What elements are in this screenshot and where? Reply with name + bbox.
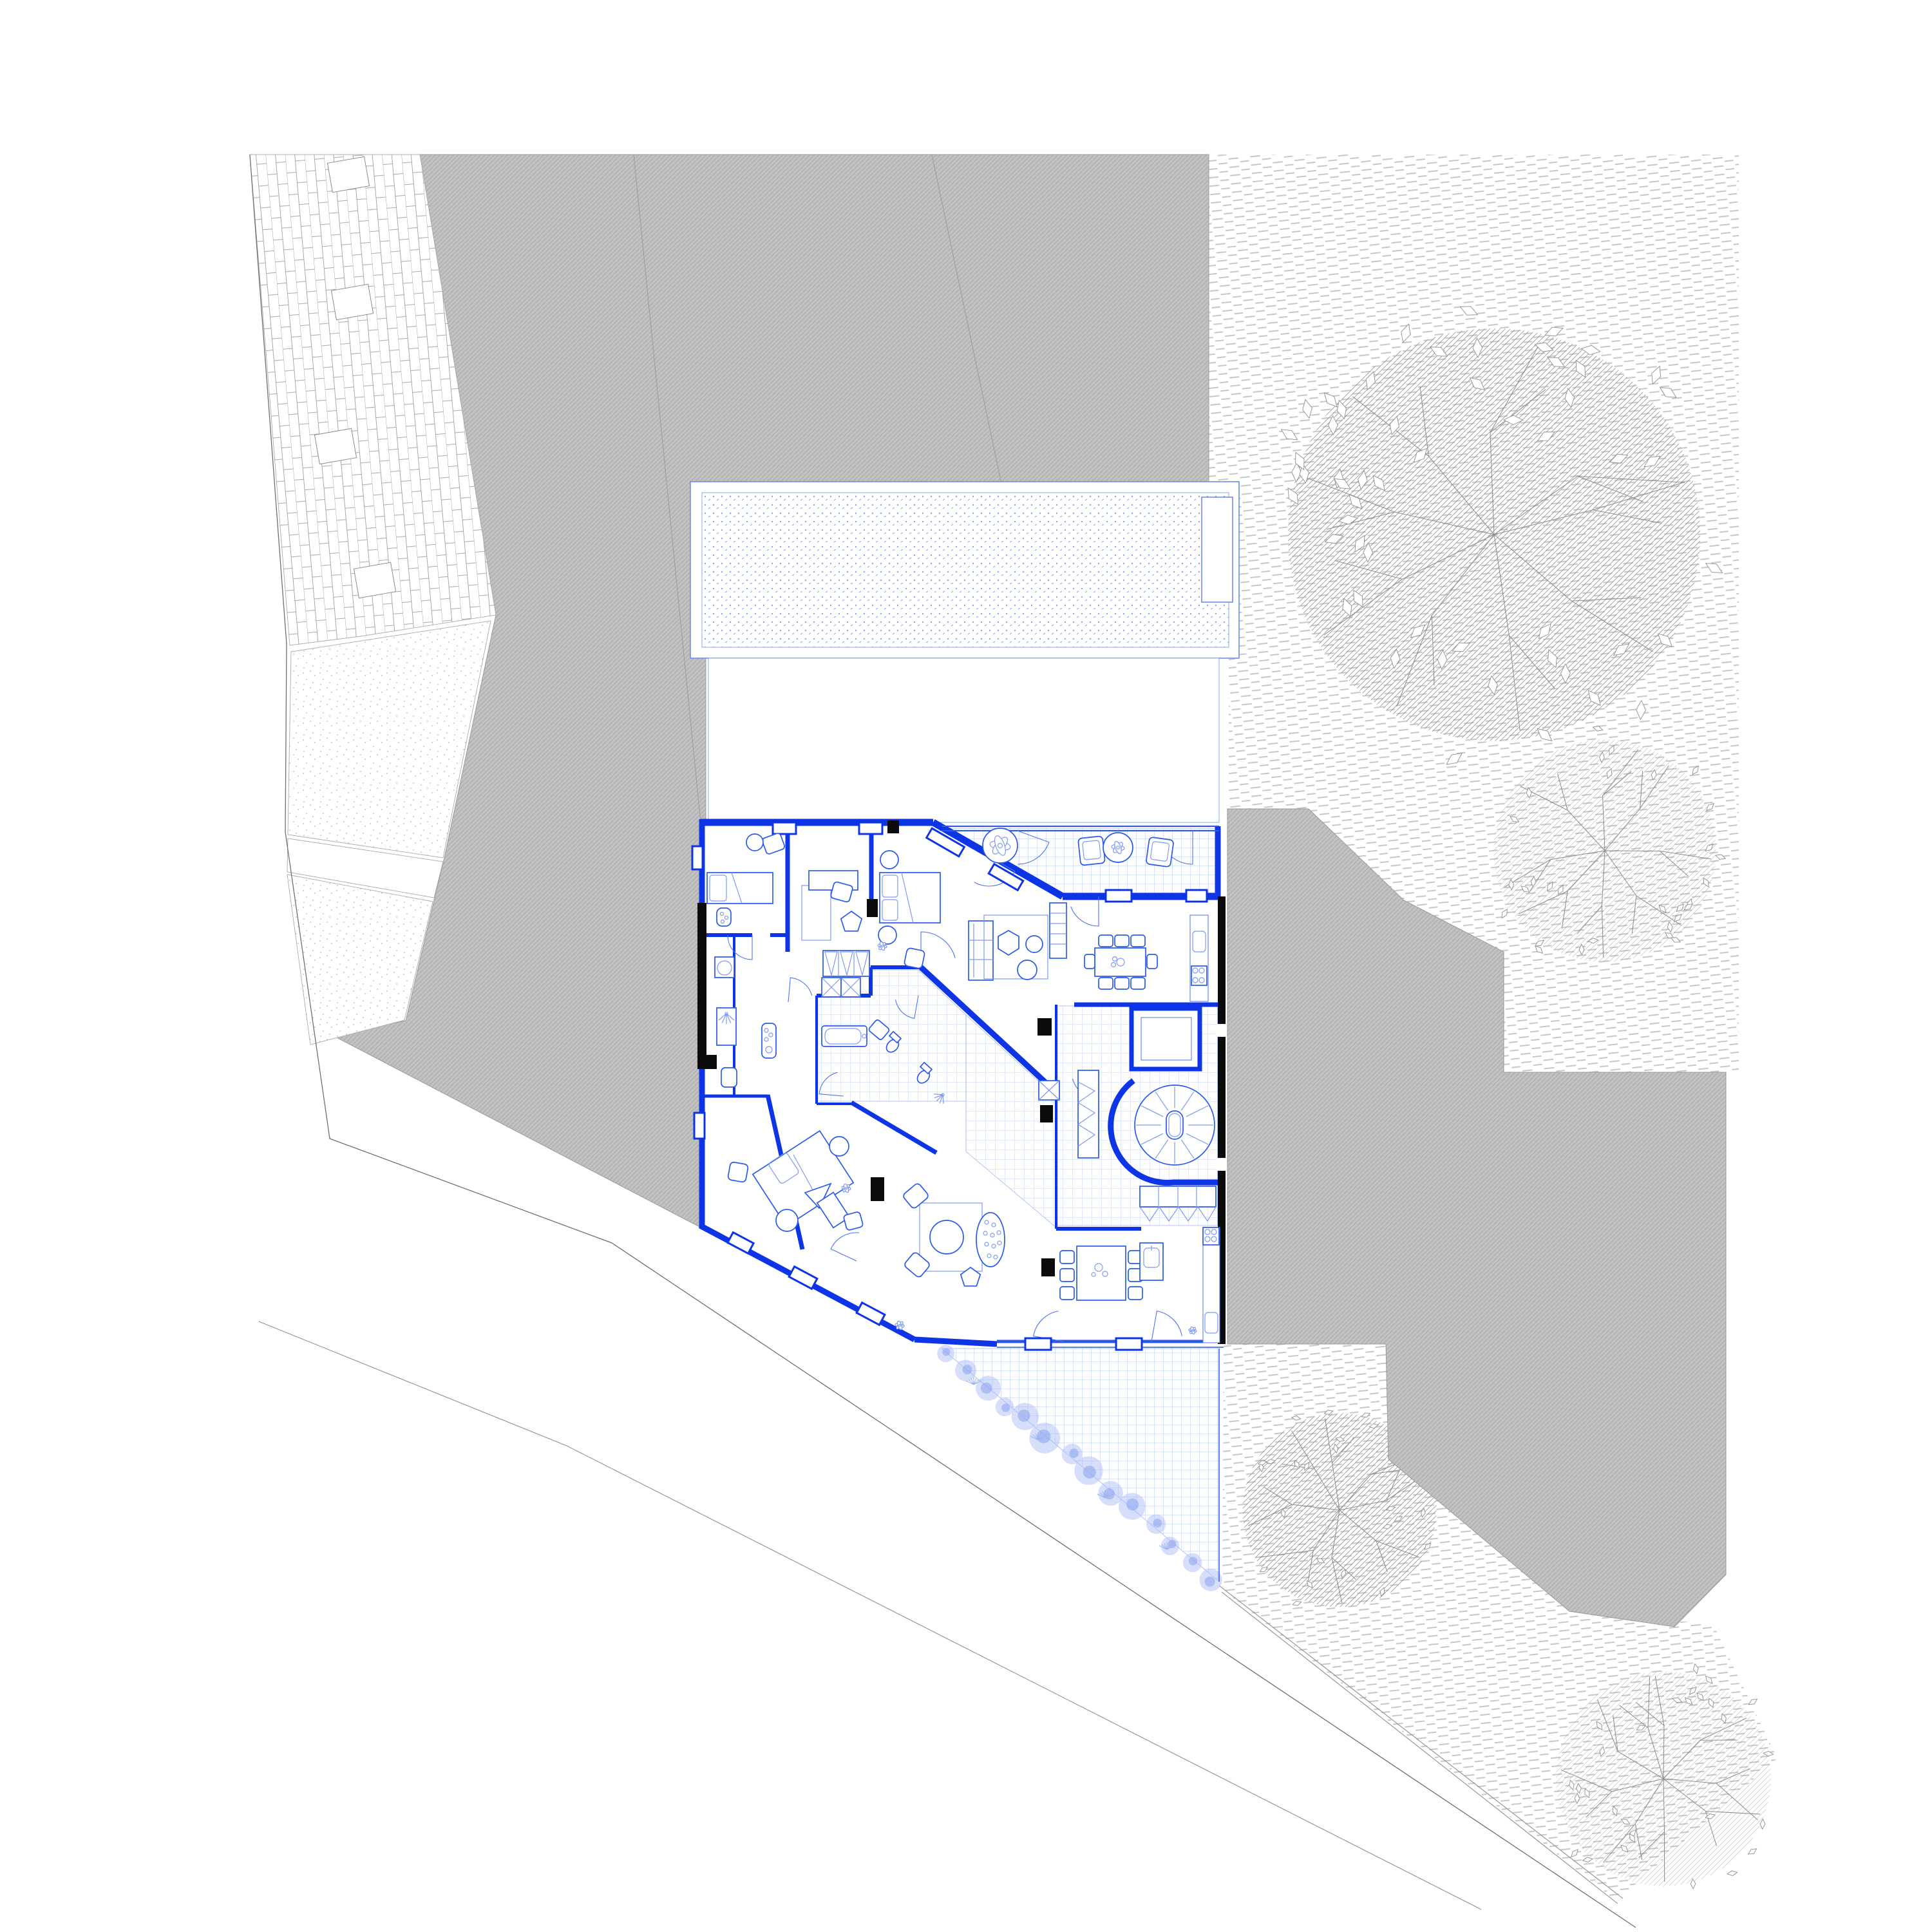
dining-chair [1060,1269,1074,1282]
bed-3 [880,873,940,923]
nightstand-1 [717,908,731,926]
window [694,1113,705,1139]
roof-hatch-box [1202,497,1233,602]
ottoman-dot [983,1231,987,1235]
dining-chair [1115,978,1129,989]
ottoman-dot [990,1233,994,1237]
ottoman-dot [998,1241,1001,1245]
pouf-u1 [1026,936,1043,952]
dining-table-upper [1095,948,1146,976]
site-plan-page [0,0,1932,1932]
green-roof-stipple [702,493,1229,647]
hedge-shrub-core [1018,1410,1030,1422]
black-wall [871,1177,884,1201]
stool-3a [880,851,898,869]
ottoman-dot [985,1220,989,1224]
dining-table-lower [1077,1246,1126,1300]
hedge-shrub-core [1126,1499,1139,1511]
armchair-3 [904,947,925,969]
ottoman-dot [987,1254,991,1258]
ottoman-dot [994,1255,998,1259]
terrace-armchair [1078,836,1105,866]
black-wall [697,1055,717,1069]
tree-lower-right-leaf [1727,1870,1738,1877]
paved-slab [331,284,373,319]
wall-opening [1217,1158,1227,1171]
window [773,822,796,834]
plant-r-center [898,1324,900,1326]
hedge-shrub-core [1001,1404,1010,1412]
hedge-shrub-core [1083,1466,1096,1479]
window [1025,1338,1051,1350]
black-wall [887,820,899,833]
terrace-plant-center [998,843,1002,848]
window [859,822,882,834]
hedge-shrub-core [963,1365,972,1374]
paved-slab [327,156,369,192]
ottoman-dot [992,1223,996,1227]
hedge-shrub-core [981,1383,992,1394]
dining-chair [1128,1287,1142,1300]
dining-chair [1060,1251,1074,1264]
kitchen-counter-upper [1190,915,1208,1001]
dining-chair [1060,1287,1074,1300]
rug-round-circle [930,1220,963,1254]
table-1 [746,834,763,851]
black-wall [1040,1105,1053,1122]
roof-lower-band [708,658,1219,822]
plant-3-center [881,945,883,947]
dining-chair [1115,935,1129,947]
sink-hall [721,1068,737,1087]
ottoman-dot [992,1244,996,1248]
window [1186,890,1207,902]
hedge-shrub-core [1153,1519,1162,1528]
tree-lower-right-leaf [1747,1847,1758,1857]
hedge-shrub-core [1189,1557,1197,1565]
black-wall [1037,1018,1052,1036]
shower-1 [717,1008,736,1045]
dining-chair [1131,978,1145,989]
dining-chair [1131,935,1145,947]
window [692,846,703,869]
ottoman-dot [985,1242,989,1246]
black-wall [697,903,706,1069]
paved-slab [314,428,356,464]
pouf-u2 [1018,960,1037,980]
elevator-car [1141,1018,1191,1060]
dining-chair [1099,978,1113,989]
side-table-m2 [776,1209,798,1231]
hedge-shrub-core [942,1348,950,1356]
black-wall [1041,1258,1055,1276]
terrace-armchair [1146,837,1173,867]
window [1116,1338,1142,1350]
side-table-m1 [829,1137,849,1156]
paved-slab [354,562,395,598]
dining-chair [1147,954,1157,969]
terrace-table-plant-center [1117,846,1119,849]
window [1106,890,1132,902]
wall-opening [1217,1024,1227,1037]
armchair-master [728,1162,748,1182]
black-wall [867,899,878,917]
plant-kitchen-center [1192,1330,1194,1332]
ottoman-oval [976,1213,1005,1267]
sideboard [1050,903,1066,958]
hedge-shrub-core [1069,1448,1078,1457]
dining-chair [1084,954,1095,969]
dining-chair [1099,935,1113,947]
hedge-shrub-core [1037,1430,1050,1443]
building-roof-layer [690,482,1239,822]
plant-master-center [845,1187,847,1189]
architectural-site-plan [0,0,1932,1932]
ottoman-dot [997,1231,1001,1235]
sofa-upper [969,921,993,980]
hedge-shrub-core [1205,1577,1215,1587]
